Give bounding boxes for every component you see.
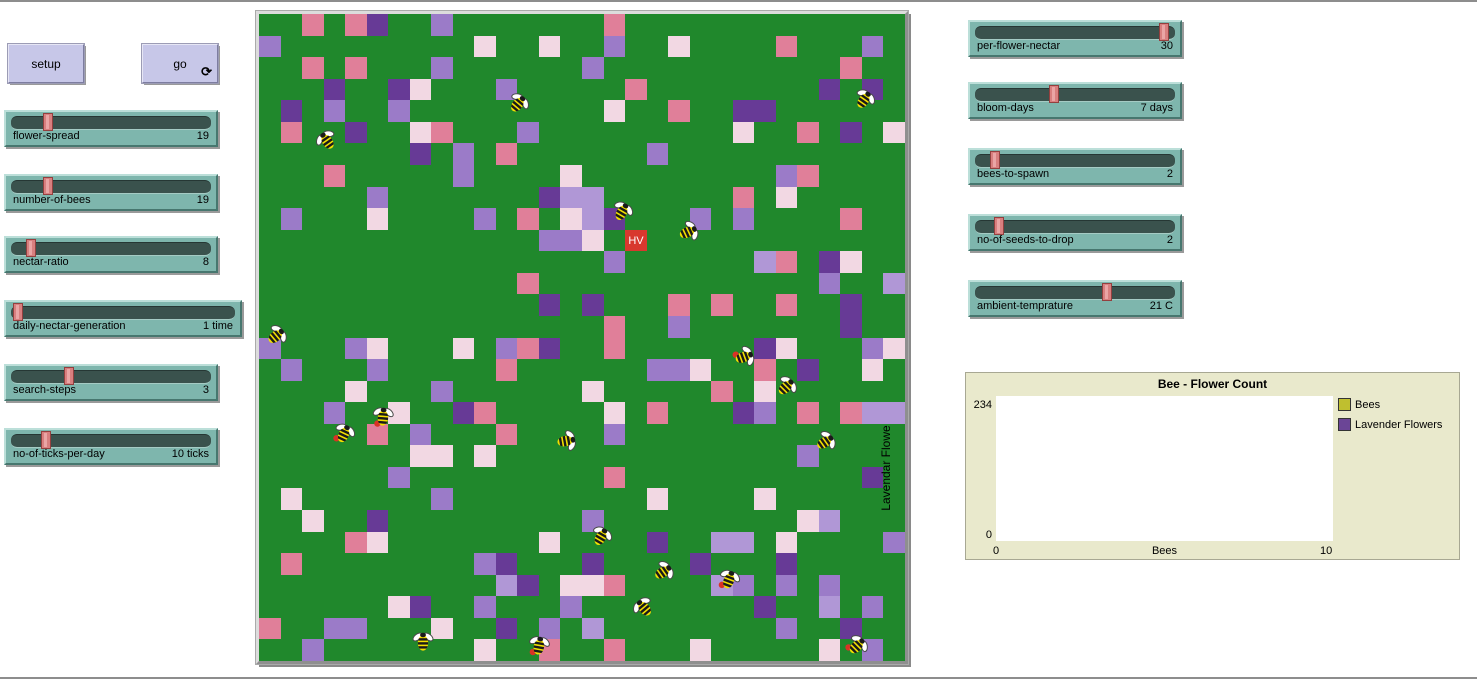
slider-handle-number-of-bees[interactable] — [43, 177, 53, 195]
flower-patch — [539, 532, 560, 553]
slider-track — [11, 116, 211, 130]
flower-patch — [690, 359, 711, 381]
plot-title: Bee - Flower Count — [966, 377, 1459, 391]
flower-patch — [668, 100, 690, 122]
slider-track — [11, 180, 211, 194]
slider-label: daily-nectar-generation — [13, 320, 126, 332]
flower-patch — [862, 36, 883, 57]
setup-button[interactable]: setup — [8, 44, 84, 83]
slider-value: 21 C — [1150, 300, 1173, 312]
slider-value: 7 days — [1141, 102, 1173, 114]
slider-label: flower-spread — [13, 130, 80, 142]
slider-flower-spread[interactable]: flower-spread19 — [4, 110, 218, 147]
flower-patch — [582, 553, 604, 575]
slider-label: nectar-ratio — [13, 256, 69, 268]
flower-patch — [797, 122, 819, 143]
flower-patch — [883, 338, 905, 359]
slider-no-of-ticks-per-day[interactable]: no-of-ticks-per-day10 ticks — [4, 428, 218, 465]
flower-patch — [647, 488, 668, 510]
legend-label: Bees — [1355, 399, 1380, 411]
flower-patch — [819, 79, 840, 100]
flower-patch — [496, 338, 517, 359]
y-axis-max-label: 234 — [968, 399, 992, 411]
flower-patch — [496, 575, 517, 596]
flower-patch — [819, 251, 840, 273]
flower-patch — [733, 122, 754, 143]
bee-icon — [626, 590, 663, 627]
flower-patch — [582, 187, 604, 208]
flower-patch — [647, 532, 668, 553]
window-bottom-border — [0, 677, 1477, 679]
slider-number-of-bees[interactable]: number-of-bees19 — [4, 174, 218, 211]
flower-patch — [474, 596, 496, 618]
slider-value: 8 — [203, 256, 209, 268]
flower-patch — [367, 359, 388, 381]
world-view[interactable]: HV — [259, 14, 905, 661]
legend-label: Lavender Flowers — [1355, 419, 1442, 431]
slider-no-of-seeds-to-drop[interactable]: no-of-seeds-to-drop2 — [968, 214, 1182, 251]
flower-patch — [840, 208, 862, 230]
flower-patch — [410, 424, 431, 445]
flower-patch — [496, 143, 517, 165]
flower-patch — [281, 208, 302, 230]
bee-icon — [309, 123, 345, 159]
flower-patch — [410, 143, 431, 165]
y-axis-min-label: 0 — [968, 529, 992, 541]
flower-patch — [840, 122, 862, 143]
flower-patch — [324, 165, 345, 187]
bee-icon — [369, 403, 397, 431]
flower-patch — [668, 294, 690, 316]
flower-patch — [410, 596, 431, 618]
slider-handle-search-steps[interactable] — [64, 367, 74, 385]
flower-patch — [367, 532, 388, 553]
flower-patch — [582, 618, 604, 639]
slider-label: bloom-days — [977, 102, 1034, 114]
flower-patch — [776, 618, 797, 639]
flower-patch — [560, 230, 582, 251]
flower-patch — [604, 338, 625, 359]
flower-patch — [711, 532, 733, 553]
flower-patch — [582, 57, 604, 79]
flower-patch — [668, 316, 690, 338]
flower-patch — [797, 402, 819, 424]
slider-value: 30 — [1161, 40, 1173, 52]
flower-patch — [862, 359, 883, 381]
setup-button-label: setup — [31, 57, 60, 71]
flower-patch — [302, 510, 324, 532]
bee-icon — [524, 631, 554, 661]
flower-patch — [582, 381, 604, 402]
flower-patch — [840, 294, 862, 316]
go-button[interactable]: go⟳ — [142, 44, 218, 83]
flower-patch — [496, 553, 517, 575]
flower-patch — [367, 338, 388, 359]
flower-patch — [259, 36, 281, 57]
flower-patch — [431, 445, 453, 467]
flower-patch — [324, 100, 345, 122]
slider-handle-ambient-temprature[interactable] — [1102, 283, 1112, 301]
flower-patch — [604, 251, 625, 273]
flower-patch — [345, 532, 367, 553]
flower-patch — [711, 381, 733, 402]
flower-patch — [560, 596, 582, 618]
flower-patch — [797, 510, 819, 532]
flower-patch — [539, 36, 560, 57]
flower-patch — [754, 596, 776, 618]
flower-patch — [797, 165, 819, 187]
slider-label: search-steps — [13, 384, 76, 396]
legend-swatch — [1338, 418, 1351, 431]
flower-patch — [496, 618, 517, 639]
flower-patch — [345, 381, 367, 402]
flower-patch — [453, 338, 474, 359]
slider-track — [975, 154, 1175, 168]
bee-icon — [645, 554, 681, 590]
flower-patch — [281, 122, 302, 143]
flower-patch — [840, 316, 862, 338]
flower-patch — [560, 187, 582, 208]
flower-patch — [388, 79, 410, 100]
flower-patch — [797, 359, 819, 381]
slider-track — [975, 220, 1175, 234]
flower-patch — [388, 596, 410, 618]
flower-patch — [324, 79, 345, 100]
forever-icon: ⟳ — [201, 65, 212, 78]
flower-patch — [819, 639, 840, 661]
flower-patch — [474, 208, 496, 230]
slider-value: 19 — [197, 130, 209, 142]
slider-label: no-of-ticks-per-day — [13, 448, 105, 460]
slider-track — [975, 88, 1175, 102]
slider-nectar-ratio[interactable]: nectar-ratio8 — [4, 236, 218, 273]
slider-track — [11, 306, 235, 320]
flower-patch — [431, 381, 453, 402]
flower-patch — [281, 100, 302, 122]
flower-patch — [496, 424, 517, 445]
flower-patch — [733, 187, 754, 208]
flower-patch — [647, 143, 668, 165]
flower-patch — [776, 575, 797, 596]
slider-value: 10 ticks — [172, 448, 209, 460]
flower-patch — [647, 359, 668, 381]
slider-track — [11, 370, 211, 384]
flower-patch — [324, 618, 345, 639]
flower-patch — [862, 596, 883, 618]
flower-patch — [582, 294, 604, 316]
flower-patch — [302, 14, 324, 36]
legend-swatch — [1338, 398, 1351, 411]
flower-patch — [776, 294, 797, 316]
flower-patch — [517, 122, 539, 143]
flower-patch — [345, 338, 367, 359]
flower-patch — [840, 251, 862, 273]
flower-patch — [453, 143, 474, 165]
flower-patch — [776, 251, 797, 273]
flower-patch — [819, 510, 840, 532]
flower-patch — [367, 14, 388, 36]
flower-patch — [517, 273, 539, 294]
flower-patch — [776, 553, 797, 575]
slider-track — [11, 242, 211, 256]
flower-patch — [840, 402, 862, 424]
flower-patch — [604, 424, 625, 445]
slider-search-steps[interactable]: search-steps3 — [4, 364, 218, 401]
flower-patch — [539, 187, 560, 208]
flower-patch — [367, 510, 388, 532]
flower-patch — [604, 402, 625, 424]
slider-bees-to-spawn[interactable]: bees-to-spawn2 — [968, 148, 1182, 185]
slider-value: 3 — [203, 384, 209, 396]
flower-patch — [302, 639, 324, 661]
flower-patch — [539, 338, 560, 359]
flower-patch — [431, 488, 453, 510]
flower-patch — [388, 467, 410, 488]
bee-icon — [551, 426, 581, 456]
flower-patch — [345, 122, 367, 143]
slider-value: 1 time — [203, 320, 233, 332]
flower-patch — [776, 36, 797, 57]
plot-area — [996, 396, 1333, 541]
flower-patch — [410, 445, 431, 467]
flower-patch — [474, 639, 496, 661]
flower-patch — [711, 294, 733, 316]
slider-handle-bees-to-spawn[interactable] — [990, 151, 1000, 169]
flower-patch — [754, 402, 776, 424]
slider-ambient-temprature[interactable]: ambient-temprature21 C — [968, 280, 1182, 317]
flower-patch — [582, 575, 604, 596]
slider-handle-daily-nectar-generation[interactable] — [13, 303, 23, 321]
slider-label: number-of-bees — [13, 194, 91, 206]
bee-icon — [410, 629, 436, 655]
flower-patch — [604, 575, 625, 596]
slider-label: per-flower-nectar — [977, 40, 1060, 52]
flower-patch — [582, 208, 604, 230]
flower-patch — [690, 553, 711, 575]
go-button-label: go — [173, 57, 186, 71]
slider-handle-no-of-ticks-per-day[interactable] — [41, 431, 51, 449]
flower-patch — [819, 273, 840, 294]
flower-patch — [281, 488, 302, 510]
y-axis-title: Lavendar Flowe — [879, 388, 893, 548]
flower-patch — [474, 36, 496, 57]
flower-patch — [345, 57, 367, 79]
flower-patch — [345, 14, 367, 36]
flower-patch — [560, 208, 582, 230]
flower-patch — [754, 100, 776, 122]
flower-patch — [345, 618, 367, 639]
slider-handle-nectar-ratio[interactable] — [26, 239, 36, 257]
window-top-border — [0, 0, 1477, 2]
flower-patch — [840, 57, 862, 79]
slider-bloom-days[interactable]: bloom-days7 days — [968, 82, 1182, 119]
flower-patch — [582, 230, 604, 251]
flower-patch — [604, 467, 625, 488]
slider-handle-per-flower-nectar[interactable] — [1159, 23, 1169, 41]
hive-label: HV — [625, 230, 647, 251]
flower-patch — [668, 36, 690, 57]
flower-patch — [539, 230, 560, 251]
slider-handle-no-of-seeds-to-drop[interactable] — [994, 217, 1004, 235]
flower-patch — [431, 57, 453, 79]
flower-patch — [367, 187, 388, 208]
flower-patch — [560, 575, 582, 596]
flower-patch — [733, 532, 754, 553]
flower-patch — [453, 165, 474, 187]
flower-patch — [754, 488, 776, 510]
slider-label: no-of-seeds-to-drop — [977, 234, 1074, 246]
flower-patch — [862, 338, 883, 359]
flower-patch — [431, 14, 453, 36]
flower-patch — [474, 402, 496, 424]
flower-patch — [517, 575, 539, 596]
legend-item-bees: Bees — [1338, 398, 1380, 411]
flower-patch — [604, 14, 625, 36]
flower-patch — [819, 575, 840, 596]
flower-patch — [883, 122, 905, 143]
flower-patch — [474, 553, 496, 575]
flower-patch — [539, 294, 560, 316]
flower-patch — [604, 100, 625, 122]
flower-patch — [776, 165, 797, 187]
flower-patch — [604, 36, 625, 57]
slider-label: bees-to-spawn — [977, 168, 1049, 180]
slider-value: 2 — [1167, 234, 1173, 246]
flower-patch — [733, 100, 754, 122]
flower-patch — [819, 596, 840, 618]
flower-patch — [668, 359, 690, 381]
flower-patch — [604, 316, 625, 338]
slider-handle-bloom-days[interactable] — [1049, 85, 1059, 103]
flower-patch — [776, 187, 797, 208]
flower-patch — [625, 79, 647, 100]
flower-patch — [410, 122, 431, 143]
flower-patch — [733, 208, 754, 230]
flower-patch — [690, 639, 711, 661]
world-frame: HV — [256, 11, 908, 664]
flower-patch — [733, 402, 754, 424]
slider-handle-flower-spread[interactable] — [43, 113, 53, 131]
slider-value: 19 — [197, 194, 209, 206]
flower-patch — [647, 402, 668, 424]
flower-patch — [367, 208, 388, 230]
flower-patch — [302, 57, 324, 79]
slider-track — [975, 26, 1175, 40]
slider-track — [975, 286, 1175, 300]
flower-patch — [388, 100, 410, 122]
flower-patch — [776, 338, 797, 359]
flower-patch — [560, 165, 582, 187]
flower-patch — [453, 402, 474, 424]
flower-patch — [517, 208, 539, 230]
flower-patch — [754, 251, 776, 273]
plot-bee-flower-count: Bee - Flower Count 234 0 Lavendar Flowe … — [965, 372, 1460, 560]
flower-patch — [431, 122, 453, 143]
slider-label: ambient-temprature — [977, 300, 1073, 312]
slider-daily-nectar-generation[interactable]: daily-nectar-generation1 time — [4, 300, 242, 337]
slider-value: 2 — [1167, 168, 1173, 180]
flower-patch — [281, 553, 302, 575]
x-axis-title: Bees — [996, 545, 1333, 557]
flower-patch — [281, 359, 302, 381]
flower-patch — [604, 639, 625, 661]
slider-per-flower-nectar[interactable]: per-flower-nectar30 — [968, 20, 1182, 57]
flower-patch — [883, 273, 905, 294]
flower-patch — [410, 79, 431, 100]
flower-patch — [517, 338, 539, 359]
legend-item-lavender-flowers: Lavender Flowers — [1338, 418, 1442, 431]
flower-patch — [474, 445, 496, 467]
flower-patch — [259, 618, 281, 639]
flower-patch — [776, 532, 797, 553]
flower-patch — [496, 359, 517, 381]
